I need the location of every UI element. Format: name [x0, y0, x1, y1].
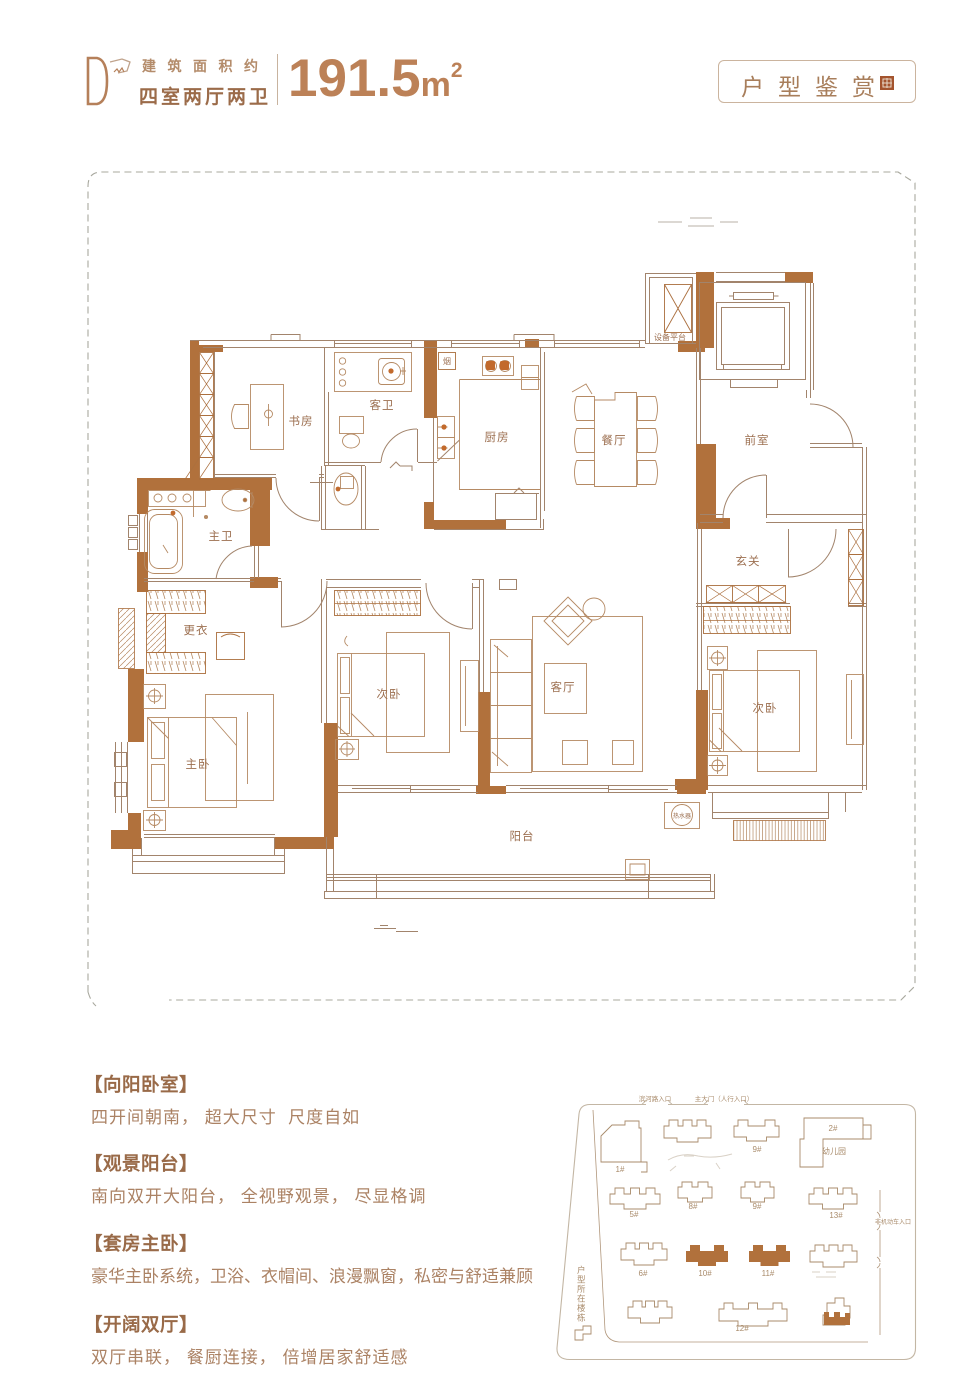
svg-text:餐厅: 餐厅	[602, 433, 627, 447]
svg-text:更衣: 更衣	[184, 623, 209, 637]
svg-text:次卧: 次卧	[377, 687, 402, 701]
svg-text:热水器: 热水器	[673, 812, 691, 820]
svg-text:非机动车入口: 非机动车入口	[875, 1218, 911, 1226]
svg-text:户型所在楼栋: 户型所在楼栋	[577, 1265, 586, 1323]
svg-text:烟: 烟	[443, 357, 451, 366]
svg-text:9#: 9#	[753, 1145, 762, 1154]
svg-text:幼儿园: 幼儿园	[822, 1146, 846, 1156]
svg-text:6#: 6#	[639, 1269, 648, 1278]
svg-text:书房: 书房	[289, 415, 314, 428]
svg-text:设备平台: 设备平台	[654, 332, 686, 342]
svg-text:5#: 5#	[630, 1210, 639, 1219]
svg-text:10#: 10#	[698, 1269, 712, 1278]
svg-text:主卧: 主卧	[186, 758, 211, 771]
svg-text:12#: 12#	[735, 1324, 749, 1333]
svg-text:2#: 2#	[829, 1124, 838, 1133]
svg-text:11#: 11#	[762, 1269, 775, 1278]
svg-text:前室: 前室	[745, 433, 770, 447]
svg-text:客卫: 客卫	[370, 398, 395, 412]
svg-text:9#: 9#	[753, 1202, 762, 1211]
svg-text:厨房: 厨房	[485, 431, 510, 444]
svg-text:主卫: 主卫	[209, 530, 234, 543]
svg-text:主大门（人行入口）: 主大门（人行入口）	[695, 1094, 754, 1103]
svg-text:1#: 1#	[616, 1165, 625, 1174]
svg-text:8#: 8#	[689, 1202, 698, 1211]
svg-text:客厅: 客厅	[551, 680, 576, 694]
svg-text:13#: 13#	[829, 1211, 843, 1220]
svg-text:次卧: 次卧	[753, 701, 778, 715]
svg-text:滨河路入口: 滨河路入口	[639, 1094, 672, 1103]
svg-text:玄关: 玄关	[736, 554, 761, 568]
svg-text:阳台: 阳台	[510, 829, 535, 843]
